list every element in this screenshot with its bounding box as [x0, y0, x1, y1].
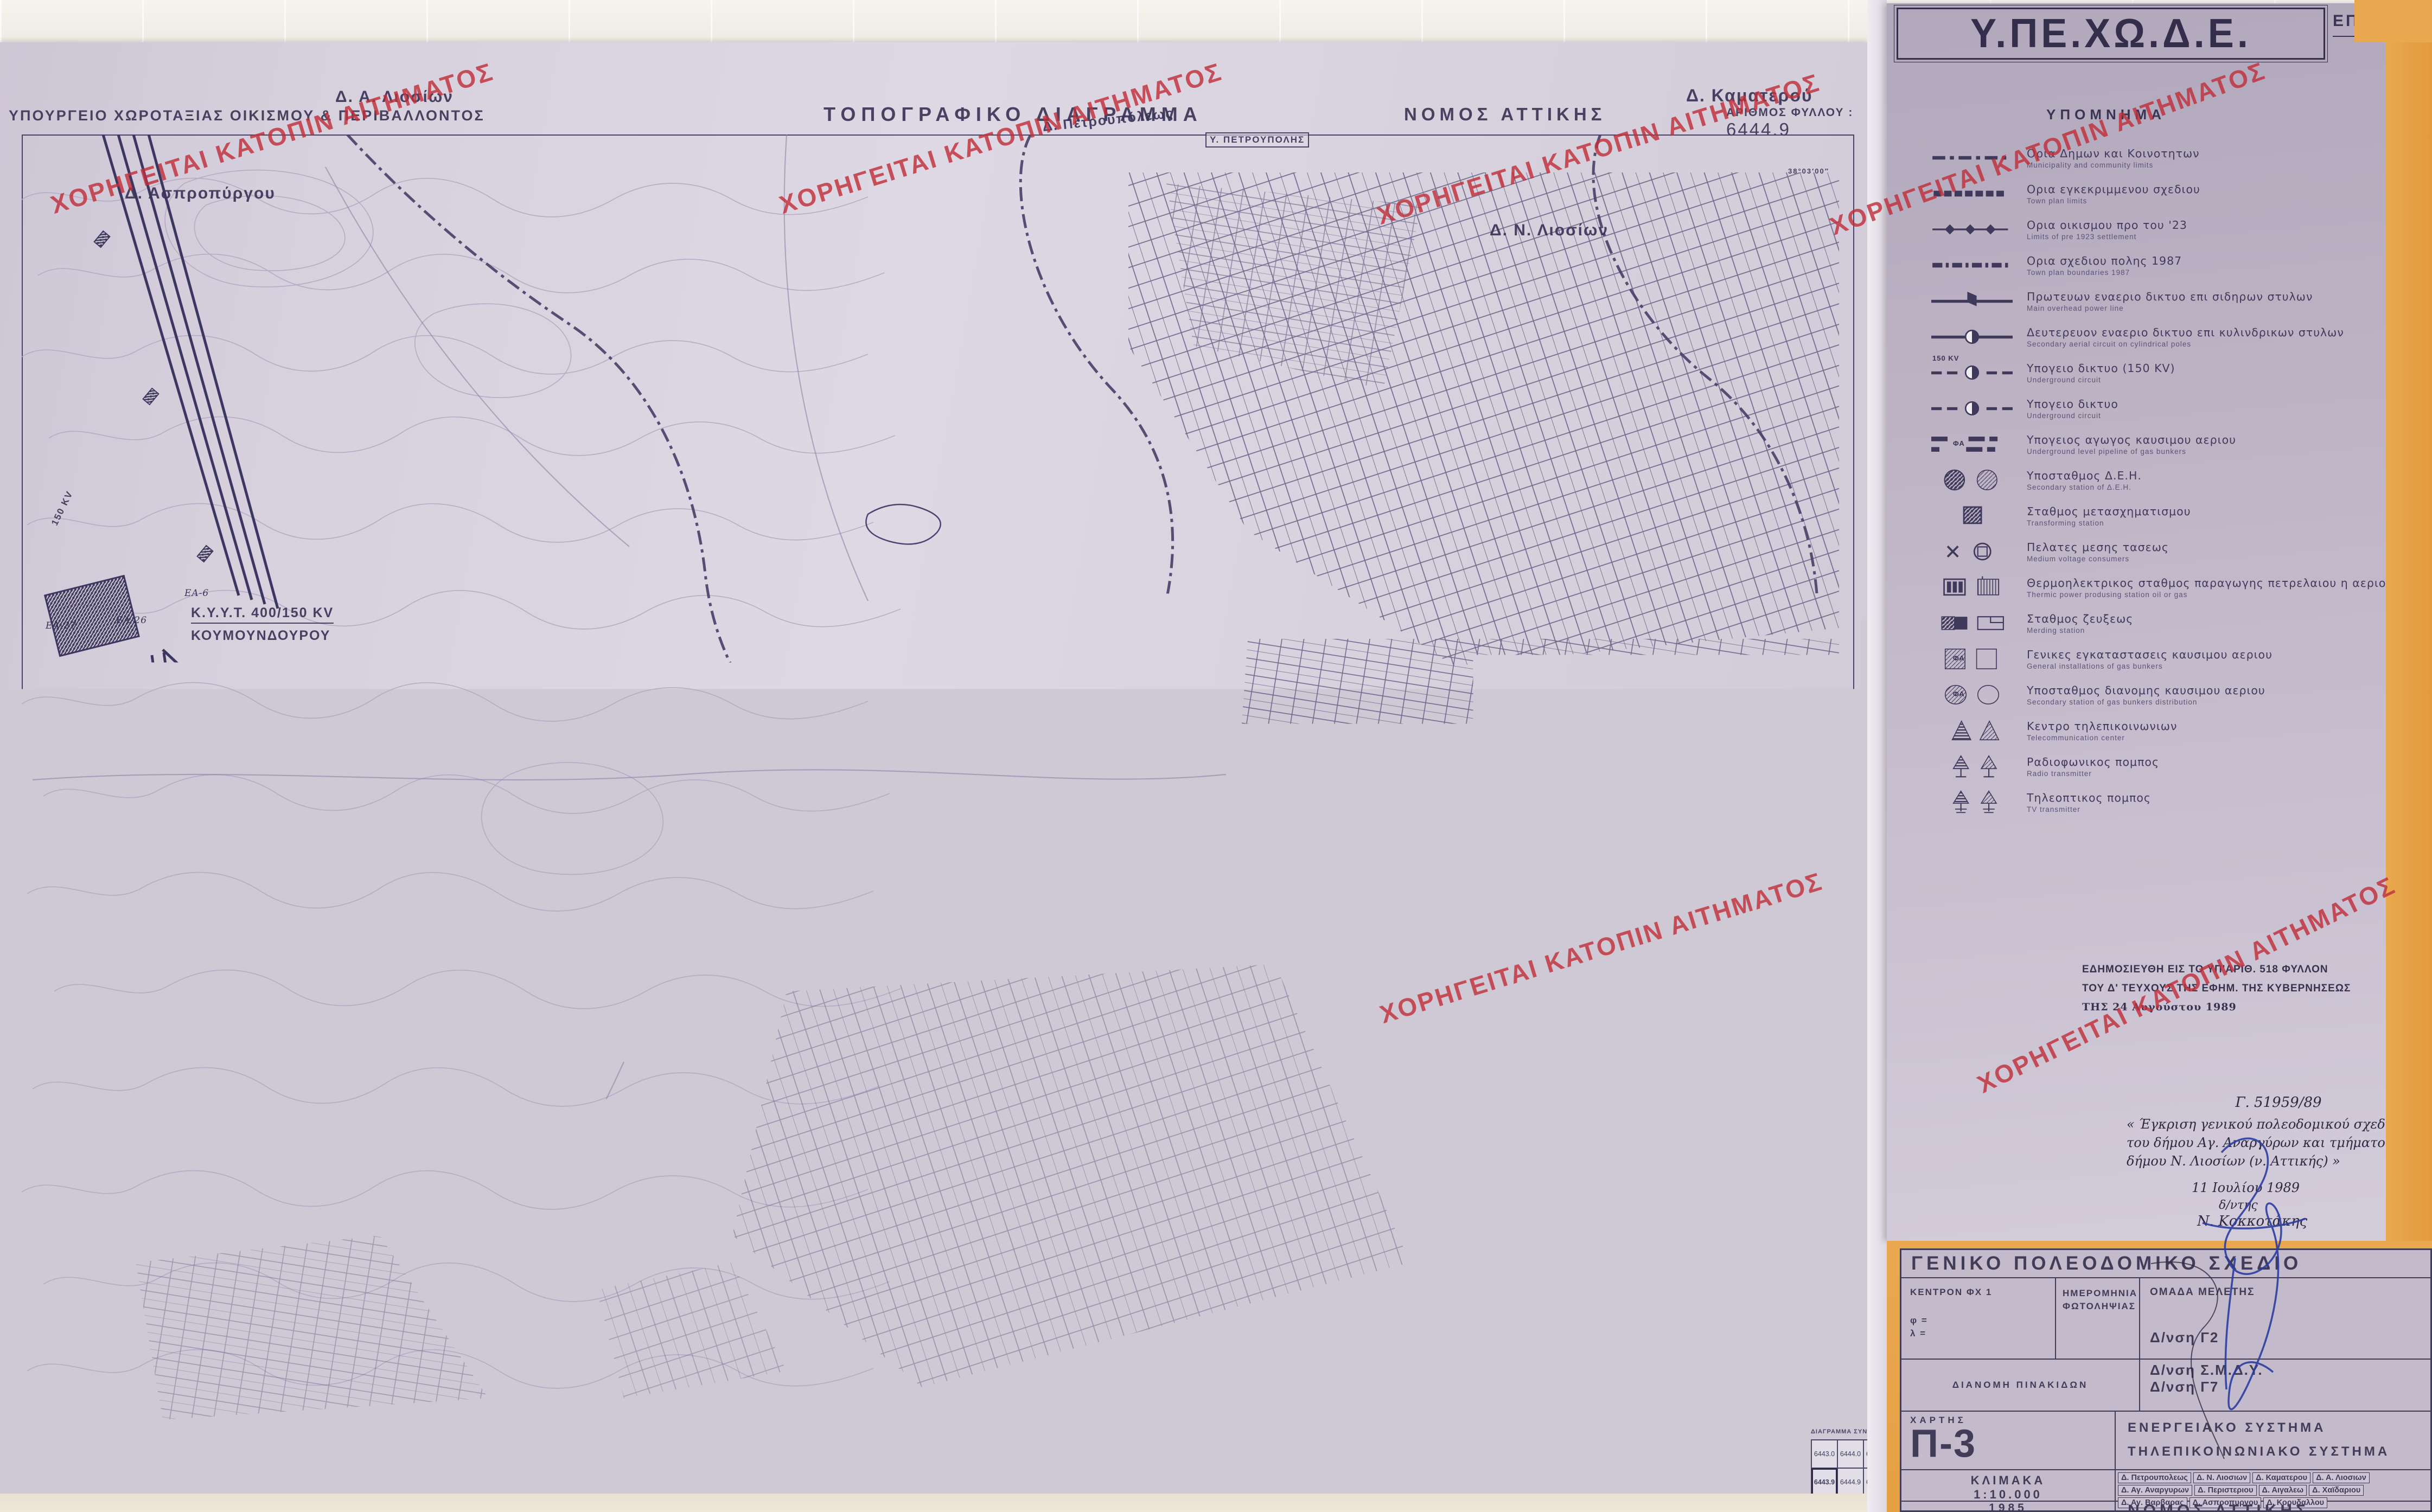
legend-label-greek: Πρωτευων εναεριο δικτυο επι σιδηρων στυλ…: [2027, 290, 2313, 303]
legend-symbol: [1931, 610, 2013, 636]
legend-symbol: ΦΑ: [1931, 431, 2013, 457]
legend-label-greek: Ορια οικισμου προ του '23: [2027, 219, 2187, 232]
sheet-center-note1: ΚΕΝΤΡΟ ΦΥΛΛΟΥ ΧΑΡΤΟΥ 1:100.000: [1420, 1439, 1597, 1448]
legend-symbol: [1931, 574, 2013, 600]
legend-item: Ορια σχεδιου πολης 1987 Town plan bounda…: [1931, 247, 2398, 283]
scale-bar: 100 300 500 0 200 400 1000 μέτρα: [894, 1437, 1113, 1475]
sheet-index-cell: 6443.0: [1811, 1440, 1837, 1468]
sheet-index-cell: 6444.0: [1837, 1440, 1863, 1468]
legend-label-english: General installations of gas bunkers: [2027, 662, 2273, 670]
legend-item: ΦΑ Υποσταθμος διανομης καυσιμου αεριου S…: [1931, 677, 2398, 713]
legend-label-english: Municipality and community limits: [2027, 161, 2200, 169]
legend-label-english: Underground circuit: [2027, 412, 2118, 420]
legend-title: ΥΠΟΜΝΗΜΑ: [2046, 106, 2166, 123]
system-telecom: ΤΗΛΕΠΙΚΟΙΝΩΝΙΑΚΟ ΣΥΣΤΗΜΑ: [2128, 1440, 2432, 1464]
legend-label-greek: Υποσταθμος διανομης καυσιμου αεριου: [2027, 684, 2265, 697]
legend-label-greek: Σταθμος ζευξεως: [2027, 612, 2133, 625]
legend-item: Πελατες μεσης τασεως Medium voltage cons…: [1931, 534, 2398, 569]
map-label: Δ. Α. Λιοσίων: [335, 88, 454, 106]
gazette-stamp: ΕΔΗΜΟΣΙΕΥΘΗ ΕΙΣ ΤΟ ΥΠ'ΑΡΙΘ. 518 ΦΥΛΛΟΝ Τ…: [2082, 960, 2418, 1017]
legend-label-greek: Θερμοηλεκτρικος σταθμος παραγωγης πετρελ…: [2027, 576, 2393, 590]
legend-item: Πρωτευων εναεριο δικτυο επι σιδηρων στυλ…: [1931, 283, 2398, 319]
legend-label-english: TV transmitter: [2027, 805, 2151, 813]
legend-label-greek: Ορια Δημων και Κοινοτητων: [2027, 147, 2200, 160]
legend-item: Τηλεοπτικος πομπος TV transmitter: [1931, 784, 2398, 820]
legend-symbol: [1931, 252, 2013, 278]
legend-label-english: Secondary station of gas bunkers distrib…: [2027, 698, 2265, 706]
sheet-center-note2: ΜΕ φ = 38°15′ λ = -0°15′ ΑΠ ΑΘΗΝΩΝ: [1420, 1459, 1599, 1468]
municipality-chip: Δ. Χαϊδαριου: [2309, 1485, 2364, 1496]
legend-label-greek: Υπογειο δικτυο: [2027, 398, 2118, 411]
map-sheet: ΥΠΟΥΡΓΕΙΟ ΧΩΡΟΤΑΞΙΑΣ ΟΙΚΙΣΜΟΥ & ΠΕΡΙΒΑΛΛ…: [0, 42, 1867, 1512]
center-cell: ΚΕΝΤΡΟΝ ΦΧ 1 φ = λ =: [1901, 1278, 2056, 1360]
map-code-cell: ΧΑΡΤΗΣ Π-3: [1901, 1412, 2116, 1470]
approval-body: « Έγκριση γενικού πολεοδομικού σχεδίου τ…: [2127, 1115, 2430, 1170]
legend-label-english: Secondary aerial circuit on cylindrical …: [2027, 340, 2344, 348]
legend-item: Ορια εγκεκριμμενου σχεδιου Town plan lim…: [1931, 176, 2398, 212]
title-block: ΓΕΝΙΚΟ ΠΟΛΕΟΔΟΜΙΚΟ ΣΧΕΔΙΟ ΚΕΝΤΡΟΝ ΦΧ 1 φ…: [1900, 1248, 2432, 1512]
legend-label-greek: Υπογειο δικτυο (150 KV): [2027, 362, 2175, 375]
legend-symbol: [1931, 467, 2013, 493]
title-block-heading: ΓΕΝΙΚΟ ΠΟΛΕΟΔΟΜΙΚΟ ΣΧΕΔΙΟ: [1901, 1250, 2430, 1278]
legend-symbol: [1931, 789, 2013, 815]
legend-symbol: ΦΑ: [1931, 682, 2013, 708]
legend-symbol: [1931, 503, 2013, 529]
legend-label-english: Transforming station: [2027, 519, 2191, 527]
gazette-stamp-line3: ΤΗΣ 24 Αυγούστου 1989: [2082, 998, 2418, 1017]
divisions-cell: Δ/νση Σ.Μ.Δ.Υ. Δ/νση Γ7: [2140, 1360, 2432, 1412]
legend-item: Δευτερευον εναεριο δικτυο επι κυλινδρικω…: [1931, 319, 2398, 355]
legend-label-english: Underground circuit: [2027, 376, 2175, 384]
legend-label-greek: Τηλεοπτικος πομπος: [2027, 791, 2151, 804]
legend-item: Θερμοηλεκτρικος σταθμος παραγωγης πετρελ…: [1931, 569, 2398, 605]
legend-label-greek: Ραδιοφωνικος πομπος: [2027, 755, 2159, 768]
editing-note: ΕΠΙΜΕΛΕΙΑ · Δ/ΝΣΗ ΧΑΡΤΟΓΡΑΦΗΣΕΩΝ: [465, 1474, 678, 1485]
legend-label-english: Telecommunication center: [2027, 734, 2177, 742]
legend-item: ΦΑ Υπογειος αγωγος καυσιμου αεριου Under…: [1931, 426, 2398, 462]
legend-symbol: 150 KV: [1931, 360, 2013, 386]
legend-label-english: Town plan boundaries 1987: [2027, 268, 2182, 277]
legend-item: Κεντρο τηλεπικοινωνιων Telecommunication…: [1931, 713, 2398, 748]
municipalities-cell: Δ. Πετρουπολεως Δ. Ν. Λιοσιων Δ. Καματερ…: [2116, 1470, 2432, 1502]
legend-label-greek: Κεντρο τηλεπικοινωνιων: [2027, 720, 2177, 733]
municipality-chip: Δ. Περιστεριου: [2194, 1485, 2256, 1496]
legend-symbol: [1931, 717, 2013, 744]
agency-title: Υ.ΠΕ.ΧΩ.Δ.Ε.: [1970, 10, 2251, 57]
gazette-stamp-line2: ΤΟΥ Δ' ΤΕΥΧΟΥΣ ΤΗΣ ΕΦΗΜ. ΤΗΣ ΚΥΒΕΡΝΗΣΕΩΣ: [2082, 979, 2418, 998]
ministry-title: ΥΠΟΥΡΓΕΙΟ ΧΩΡΟΤΑΞΙΑΣ ΟΙΚΙΣΜΟΥ & ΠΕΡΙΒΑΛΛ…: [9, 107, 485, 124]
legend-label-greek: Ορια σχεδιου πολης 1987: [2027, 254, 2182, 267]
legend-item: Ραδιοφωνικος πομπος Radio transmitter: [1931, 748, 2398, 784]
legend-label-greek: Σταθμος μετασχηματισμου: [2027, 505, 2191, 518]
map-code: Π-3: [1910, 1426, 2115, 1462]
sheet-gap: [1867, 0, 1887, 1512]
legend-label-english: Thermic power produsing station oil or g…: [2027, 591, 2393, 599]
systems-cell: ΕΝΕΡΓΕΙΑΚΟ ΣΥΣΤΗΜΑ ΤΗΛΕΠΙΚΟΙΝΩΝΙΑΚΟ ΣΥΣΤ…: [2116, 1412, 2432, 1470]
municipality-chip: Δ. Καματερου: [2252, 1472, 2310, 1483]
legend-symbol: ΦΑ: [1931, 646, 2013, 672]
scale-bar-rule: [894, 1449, 1111, 1454]
legend-item: Σταθμος μετασχηματισμου Transforming sta…: [1931, 498, 2398, 534]
agency-title-box: Υ.ΠΕ.ΧΩ.Δ.Ε.: [1897, 8, 2325, 60]
legend-item: Υπογειο δικτυο Underground circuit: [1931, 390, 2398, 426]
division-g2: Δ/νση Γ2: [2150, 1329, 2432, 1346]
legend-label-english: Limits of pre 1923 settlement: [2027, 233, 2187, 241]
document-title: ΤΟΠΟΓΡΑΦΙΚΟ ΔΙΑΓΡΑΜΜΑ: [824, 103, 1203, 126]
source-note-line1: ΤΟ ΤΟΠΟΓΡΑΦΙΚΟ ΥΠΟΒΑΘΡΟ ΠΡΟΕΡΧΕΤΑΙ ΑΠΟ: [20, 1472, 283, 1483]
legend-item: Σταθμος ζευξεως Merding station: [1931, 605, 2398, 641]
legend-label-greek: Γενικες εγκαταστασεις καυσιμου αεριου: [2027, 648, 2273, 661]
legend-label-english: Medium voltage consumers: [2027, 555, 2169, 563]
legend-symbol: [1931, 288, 2013, 314]
approval-note: Γ. 51959/89 « Έγκριση γενικού πολεοδομικ…: [2127, 1094, 2430, 1229]
orange-corner: [2354, 0, 2432, 42]
legend-symbol: [1931, 324, 2013, 350]
division-smdy: Δ/νση Σ.Μ.Δ.Υ.: [2150, 1362, 2432, 1379]
legend-item: ΦΑ Γενικες εγκαταστασεις καυσιμου αεριου…: [1931, 641, 2398, 677]
legend-item: Ορια Δημων και Κοινοτητων Municipality a…: [1931, 140, 2398, 176]
approval-ref: Γ. 51959/89: [2127, 1094, 2430, 1111]
sheet-index-cell: 6444.9: [1837, 1468, 1863, 1496]
legend-symbol: [1931, 539, 2013, 565]
legend-label-greek: Δευτερευον εναεριο δικτυο επι κυλινδρικω…: [2027, 326, 2344, 339]
municipality-chip: Δ. Ν. Λιοσιων: [2193, 1472, 2250, 1483]
legend-label-greek: Υποσταθμος Δ.Ε.Η.: [2027, 469, 2142, 482]
legend-item: Υποσταθμος Δ.Ε.Η. Secondary station of Δ…: [1931, 462, 2398, 498]
legend-symbol: [1931, 395, 2013, 421]
legend-symbol-label: ΦΑ: [1953, 439, 1965, 447]
legend-label-english: Merding station: [2027, 626, 2133, 635]
division-g7: Δ/νση Γ7: [2150, 1379, 2432, 1395]
legend-label-english: Secondary station of Δ.Ε.Η.: [2027, 483, 2142, 491]
year-cell: 1985: [1901, 1502, 2116, 1512]
municipality-chip: Δ. Αγ. Αναργυρων: [2118, 1485, 2192, 1496]
legend-label-greek: Υπογειος αγωγος καυσιμου αεριου: [2027, 433, 2236, 446]
legend-symbol: [1931, 216, 2013, 242]
sheet-index-cell: 6443.9: [1811, 1468, 1837, 1496]
legend-symbol: [1931, 145, 2013, 171]
legend-symbol-label: 150 KV: [1932, 354, 1959, 362]
legend-label-greek: Ορια εγκεκριμμενου σχεδιου: [2027, 183, 2200, 196]
region-cell: ΝΟΜΟΣ ΑΤΤΙΚΗΣ: [2116, 1502, 2432, 1512]
legend-symbol-label: ΦΑ: [1953, 654, 1965, 662]
legend-item: 150 KV Υπογειο δικτυο (150 KV) Undergrou…: [1931, 355, 2398, 390]
legend-symbol: [1931, 181, 2013, 207]
legend-label-english: Radio transmitter: [2027, 770, 2159, 778]
municipality-chip: Δ. Α. Λιοσιων: [2313, 1472, 2370, 1483]
legend-label-english: Main overhead power line: [2027, 304, 2313, 312]
map-drawing: [22, 134, 1854, 1423]
region-title: ΝΟΜΟΣ ΑΤΤΙΚΗΣ: [1404, 104, 1606, 125]
municipality-chip: Δ. Πετρουπολεως: [2118, 1472, 2191, 1483]
legend-symbol-label: ΦΑ: [1953, 690, 1965, 698]
legend-label-english: Underground level pipeline of gas bunker…: [2027, 447, 2236, 456]
gazette-stamp-line1: ΕΔΗΜΟΣΙΕΥΘΗ ΕΙΣ ΤΟ ΥΠ'ΑΡΙΘ. 518 ΦΥΛΛΟΝ: [2082, 960, 2418, 979]
system-energy: ΕΝΕΡΓΕΙΑΚΟ ΣΥΣΤΗΜΑ: [2128, 1416, 2432, 1440]
study-team-cell: ΟΜΑΔΑ ΜΕΛΕΤΗΣ Δ/νση Γ2: [2140, 1278, 2432, 1360]
photo-date-cell: ΗΜΕΡΟΜΗΝΙΑ ΦΩΤΟΛΗΨΙΑΣ: [2056, 1278, 2140, 1360]
legend-label-greek: Πελατες μεσης τασεως: [2027, 541, 2169, 554]
legend-item: Ορια οικισμου προ του '23 Limits of pre …: [1931, 212, 2398, 247]
legend-symbol: [1931, 753, 2013, 779]
legend-list: Ορια Δημων και Κοινοτητων Municipality a…: [1931, 140, 2398, 820]
map-label: Δ. Καματερού: [1686, 86, 1813, 106]
legend-label-english: Town plan limits: [2027, 197, 2200, 205]
distribution-cell: ΔΙΑΝΟΜΗ ΠΙΝΑΚΙΔΩΝ: [1901, 1360, 2140, 1412]
municipality-chip: Δ. Αιγαλεω: [2259, 1485, 2307, 1496]
scan-bottom-edge: [0, 1494, 1887, 1512]
scale-cell: ΚΛΙΜΑΚΑ 1:10.000: [1901, 1470, 2116, 1502]
